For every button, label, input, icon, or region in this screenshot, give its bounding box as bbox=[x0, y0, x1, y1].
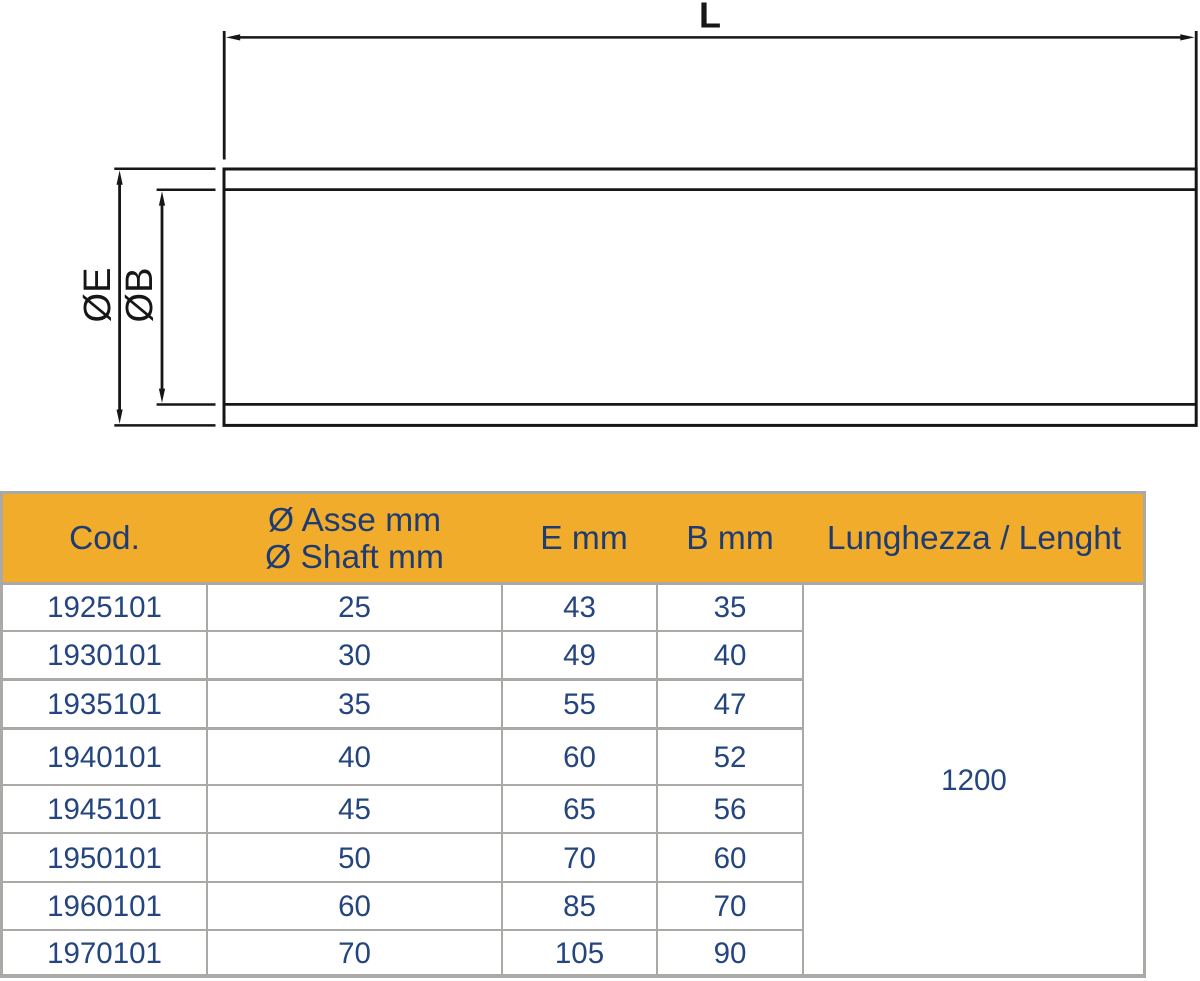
svg-text:ØB: ØB bbox=[119, 268, 161, 323]
svg-text:ØE: ØE bbox=[77, 268, 119, 323]
svg-text:L: L bbox=[699, 0, 721, 36]
